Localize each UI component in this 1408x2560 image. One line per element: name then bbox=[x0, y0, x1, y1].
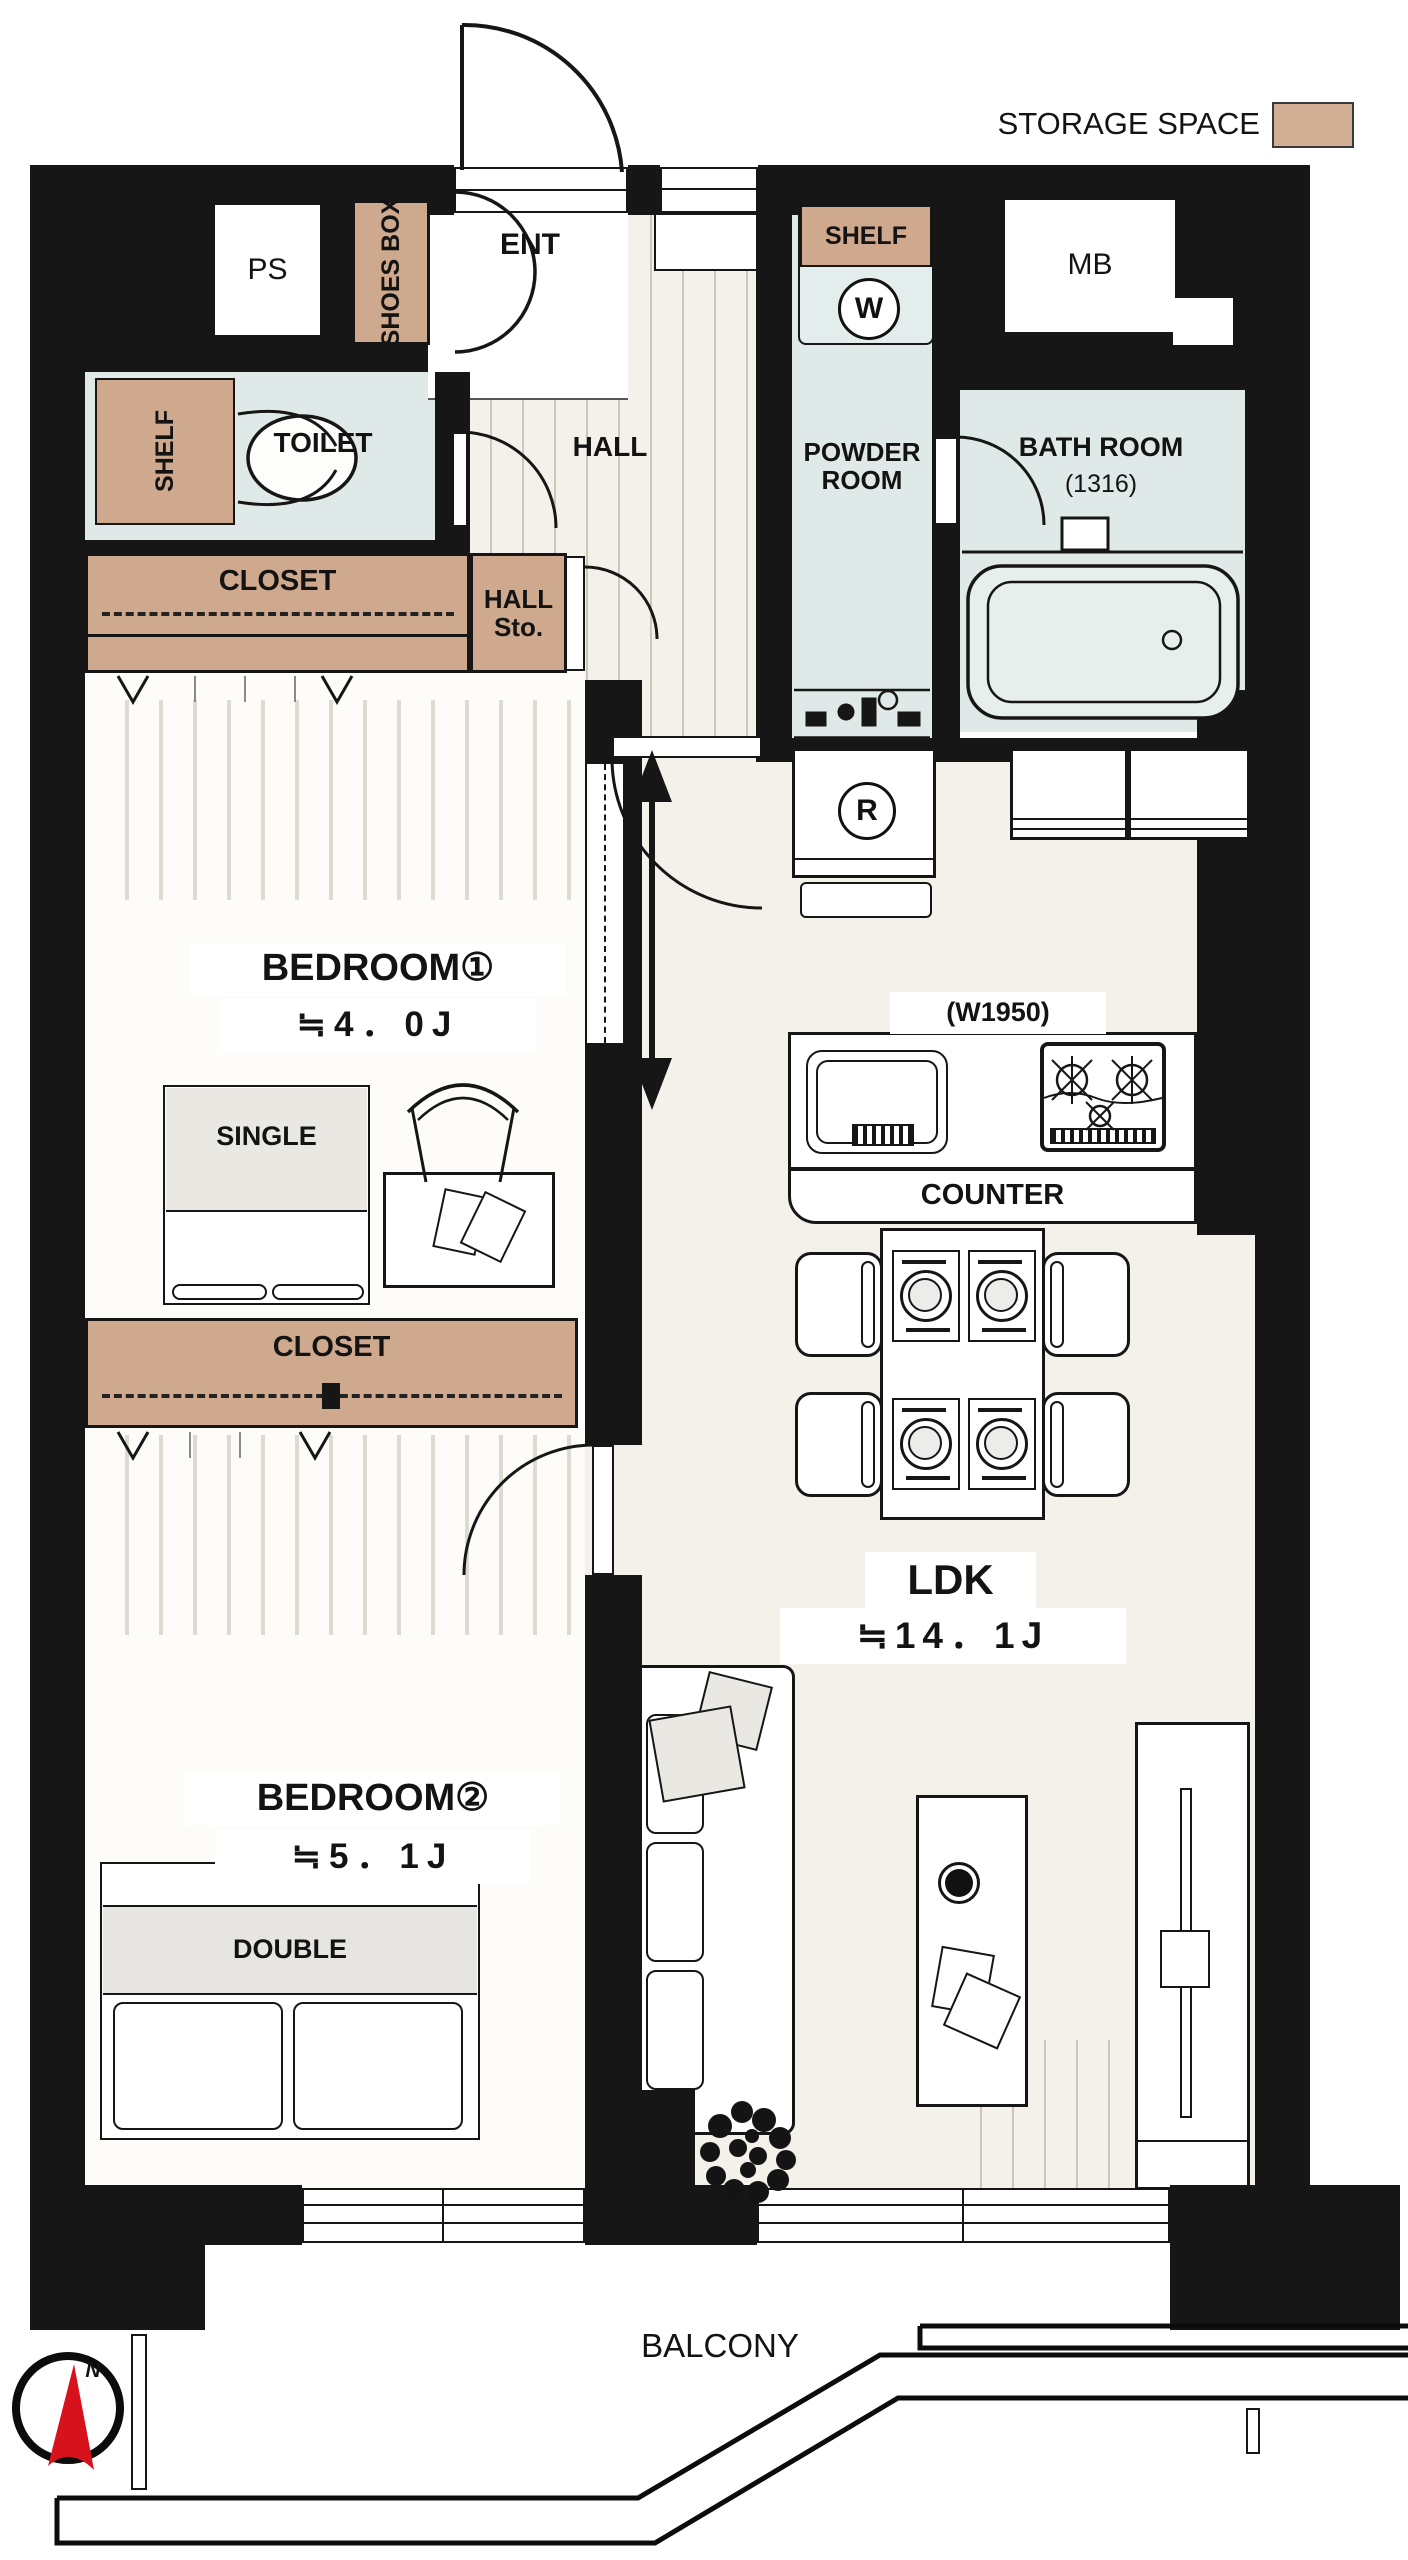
bedroom2-door[interactable] bbox=[592, 1445, 614, 1575]
bedroom2-area: ≒5．1J bbox=[215, 1830, 531, 1884]
bedroom1-sliding-door[interactable] bbox=[585, 762, 625, 1045]
bathroom-label: BATH ROOM bbox=[965, 428, 1237, 468]
bathroom-size-label: (1316) bbox=[965, 466, 1237, 502]
single-bed-blanket-roll-2 bbox=[272, 1284, 364, 1300]
tv-board-shelf-line bbox=[1138, 2140, 1247, 2142]
ldk-area: ≒14．1J bbox=[780, 1608, 1126, 1664]
wall-bath-right bbox=[1245, 390, 1257, 735]
place-setting-4 bbox=[968, 1398, 1036, 1490]
washing-machine: W bbox=[838, 278, 900, 340]
bedroom1-area: ≒4．0J bbox=[220, 998, 536, 1052]
hall-storage-label: HALL Sto. bbox=[470, 560, 567, 666]
closet2-pipe-support bbox=[322, 1383, 340, 1409]
front-door-swing bbox=[462, 25, 622, 172]
counter-width-label: (W1950) bbox=[890, 992, 1106, 1034]
bath-door[interactable] bbox=[934, 437, 958, 525]
entrance-label: ENT bbox=[460, 222, 600, 268]
wall-bottom-mid bbox=[695, 2185, 757, 2245]
legend-storage-swatch bbox=[1272, 102, 1354, 148]
toilet-label: TOILET bbox=[238, 420, 408, 466]
wall-bedroom2-right-top bbox=[585, 1330, 642, 1445]
single-bed-label: SINGLE bbox=[166, 1112, 367, 1162]
closet2-label: CLOSET bbox=[85, 1324, 578, 1372]
closet1-shelf-line bbox=[88, 634, 467, 637]
balcony-wall-tick bbox=[1246, 2408, 1260, 2454]
sofa-cushion-3 bbox=[646, 1970, 704, 2090]
bedroom1-wood-hint bbox=[95, 700, 575, 900]
sofa-throw-pillow-2 bbox=[648, 1705, 745, 1802]
toilet-door[interactable] bbox=[452, 432, 468, 527]
kitchen-cabinet-2-edge bbox=[1131, 818, 1247, 830]
wall-bottom-left-block bbox=[30, 2225, 205, 2330]
hall-label: HALL bbox=[530, 424, 690, 470]
ent-window-bay bbox=[654, 213, 758, 271]
refrigerator-drawer bbox=[800, 882, 932, 918]
tv-stand bbox=[1160, 1930, 1210, 1988]
cup bbox=[945, 1869, 973, 1897]
bedroom1-name: BEDROOM① bbox=[190, 942, 566, 996]
single-bed-blanket-roll-1 bbox=[172, 1284, 267, 1300]
balcony-divider bbox=[131, 2334, 147, 2490]
toilet-shelf-label: SHELF bbox=[104, 386, 226, 516]
wall-bedroom1-right bbox=[585, 1045, 642, 1330]
dining-chair-3 bbox=[1042, 1252, 1130, 1357]
sink-drain-rack bbox=[852, 1124, 914, 1146]
wall-top-pier bbox=[628, 165, 660, 215]
meter-box-step bbox=[1173, 298, 1233, 345]
closet1-hanger-pipe bbox=[102, 612, 454, 616]
closet1-label: CLOSET bbox=[85, 558, 470, 606]
counter-label: COUNTER bbox=[788, 1168, 1197, 1224]
balcony-label: BALCONY bbox=[570, 2322, 870, 2370]
hall-storage-door[interactable] bbox=[565, 556, 585, 671]
floor-plan: STORAGE SPACE bbox=[0, 0, 1408, 2560]
place-setting-1 bbox=[892, 1250, 960, 1342]
double-bed-label: DOUBLE bbox=[103, 1905, 477, 1995]
sofa-cushion-2 bbox=[646, 1842, 704, 1962]
meter-box-label: MB bbox=[1005, 240, 1175, 290]
refrigerator-symbol: R bbox=[838, 782, 896, 840]
wall-bottom-right-block bbox=[1170, 2185, 1400, 2330]
ldk-name: LDK bbox=[865, 1552, 1036, 1608]
kitchen-cabinet-1-edge bbox=[1013, 818, 1125, 830]
dining-chair-4 bbox=[1042, 1392, 1130, 1497]
wall-hall-powder bbox=[756, 200, 792, 745]
place-setting-2 bbox=[968, 1250, 1036, 1342]
place-setting-3 bbox=[892, 1398, 960, 1490]
ldk-window[interactable] bbox=[757, 2188, 1170, 2243]
bedroom2-wood-hint bbox=[95, 1435, 575, 1635]
compass-north-label: N bbox=[78, 2358, 108, 2384]
refrigerator-line bbox=[795, 858, 933, 860]
shoes-box-label: SHOES BOX bbox=[331, 197, 451, 347]
legend-label: STORAGE SPACE bbox=[900, 100, 1260, 148]
dining-chair-1 bbox=[795, 1252, 883, 1357]
wall-right bbox=[1255, 390, 1310, 2190]
double-bed-pillow-2 bbox=[293, 2002, 463, 2130]
entrance-door-opening bbox=[454, 167, 628, 213]
wall-powder-bath bbox=[932, 345, 960, 745]
dining-chair-2 bbox=[795, 1392, 883, 1497]
bedroom2-window[interactable] bbox=[302, 2188, 585, 2243]
double-bed-pillow-1 bbox=[113, 2002, 283, 2130]
powder-shelf-label: SHELF bbox=[800, 205, 932, 267]
wall-bottom-pier bbox=[585, 2090, 695, 2245]
powder-room-label: POWDER ROOM bbox=[792, 428, 932, 504]
entrance-floor bbox=[428, 180, 628, 400]
ent-window bbox=[660, 167, 758, 213]
pipe-space-label: PS bbox=[215, 245, 320, 295]
ldk-hall-door[interactable] bbox=[612, 736, 762, 758]
wall-left bbox=[30, 372, 85, 2187]
wall-sliding-back bbox=[623, 762, 642, 1045]
stove-grill bbox=[1050, 1128, 1156, 1144]
bedroom2-name: BEDROOM② bbox=[185, 1772, 561, 1826]
